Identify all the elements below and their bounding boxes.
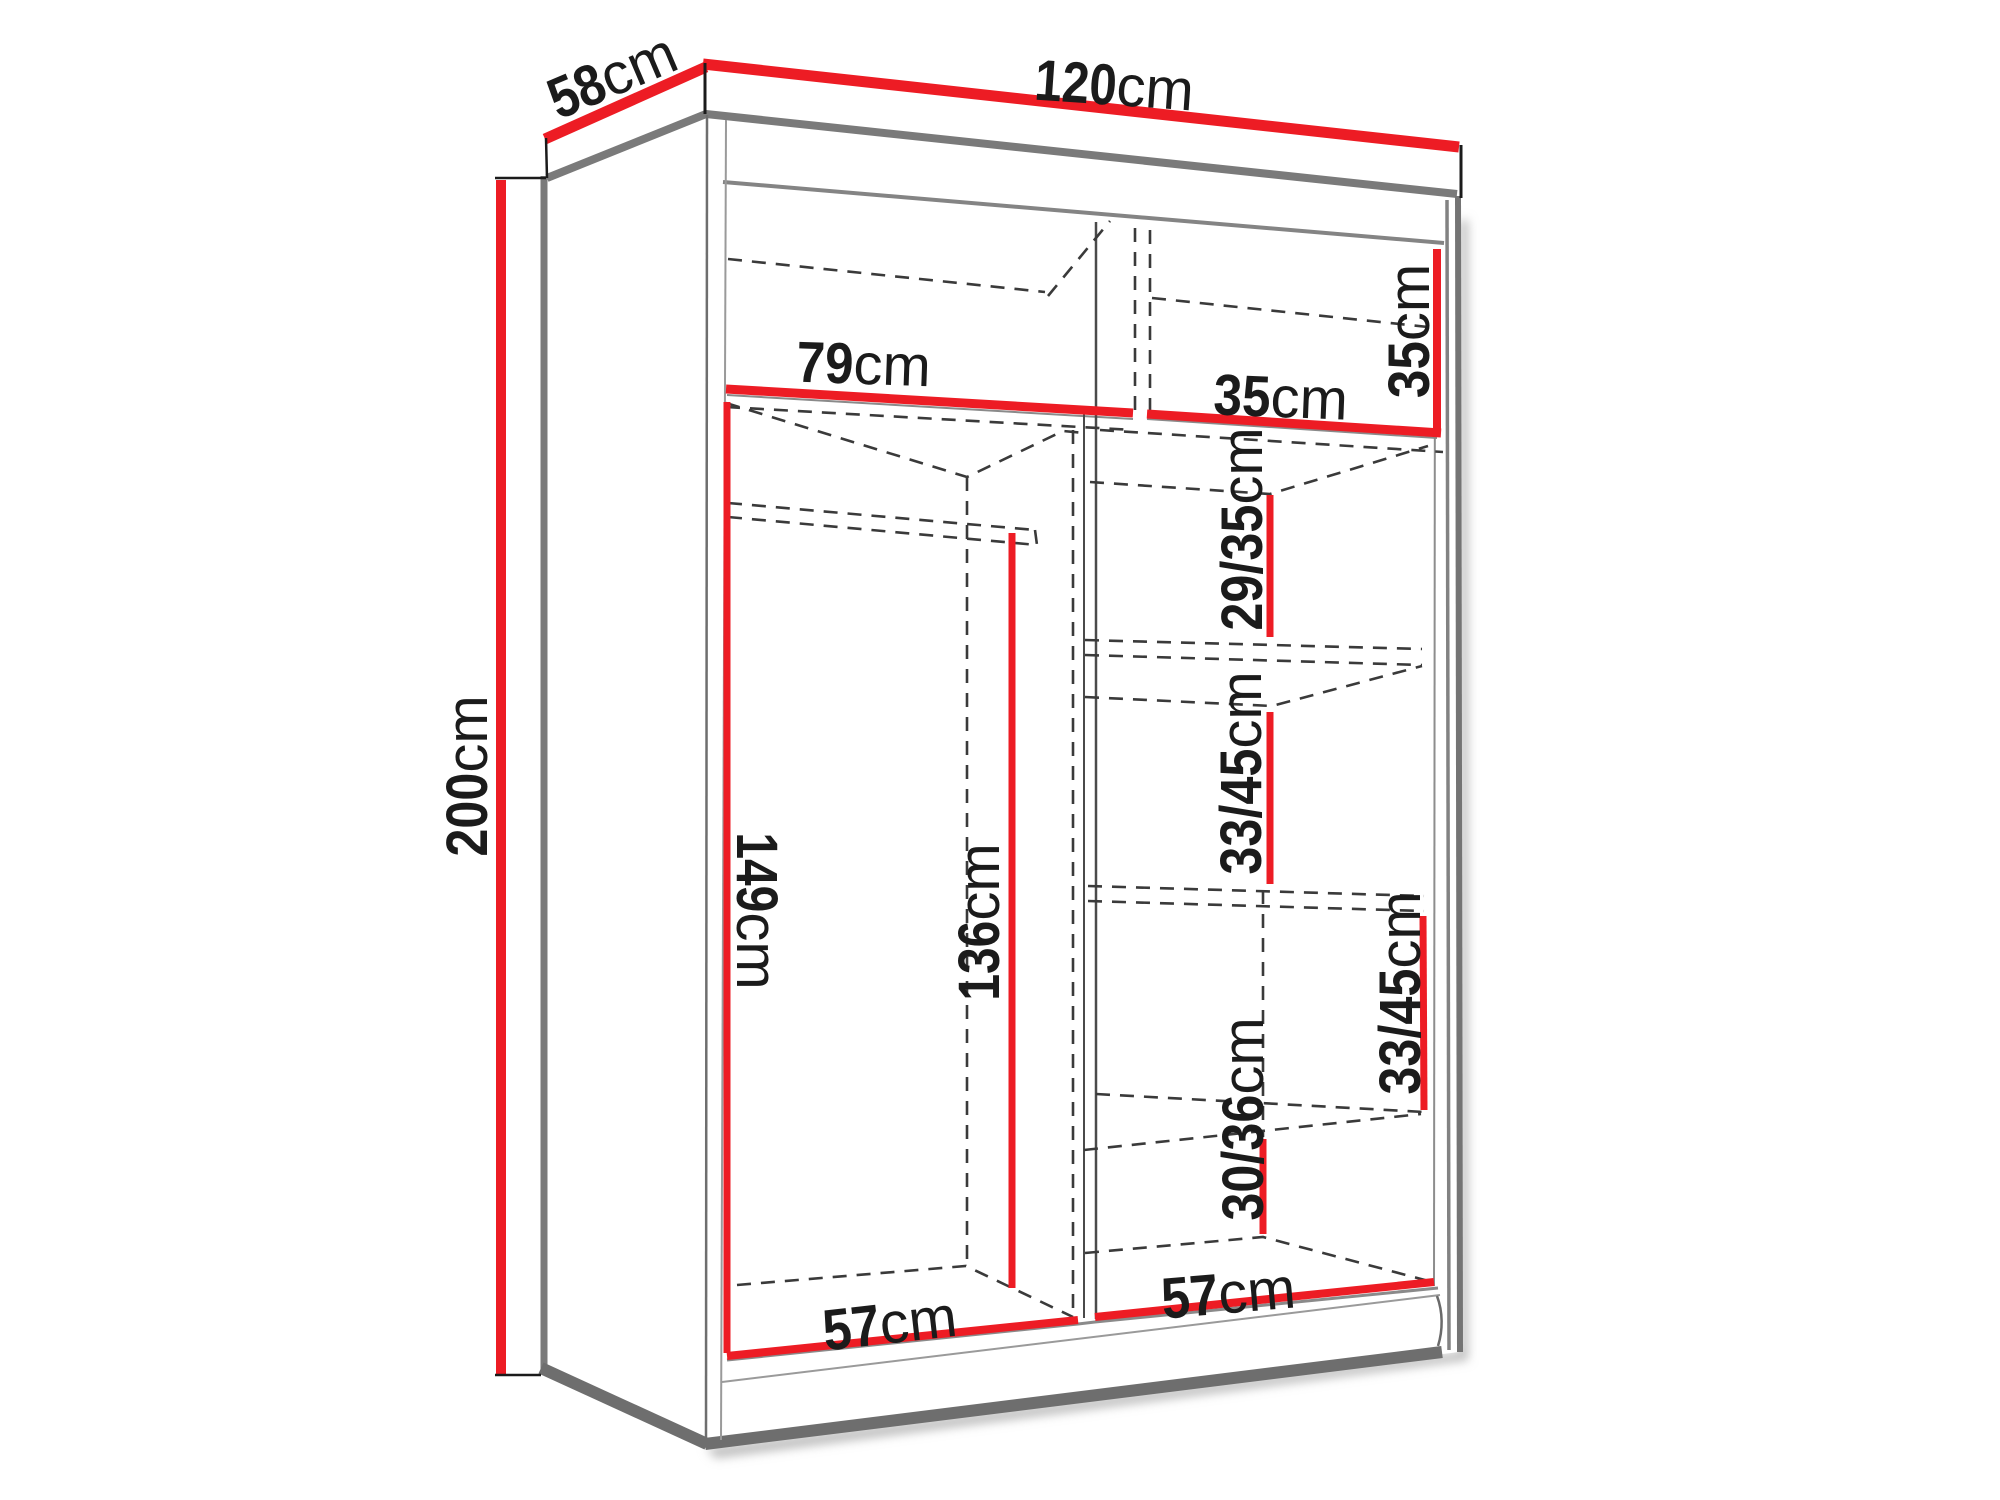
svg-text:200cm: 200cm [435, 695, 500, 856]
svg-text:79cm: 79cm [795, 330, 932, 400]
svg-text:29/35cm: 29/35cm [1210, 427, 1275, 630]
svg-text:120cm: 120cm [1033, 48, 1196, 124]
svg-text:149cm: 149cm [724, 832, 789, 989]
svg-text:35cm: 35cm [1377, 264, 1442, 398]
svg-text:33/45cm: 33/45cm [1368, 891, 1433, 1094]
svg-text:35cm: 35cm [1212, 362, 1349, 432]
svg-text:136cm: 136cm [947, 843, 1012, 1000]
svg-text:33/45cm: 33/45cm [1209, 671, 1274, 874]
svg-text:30/36cm: 30/36cm [1211, 1017, 1276, 1220]
svg-text:57cm: 57cm [1159, 1255, 1298, 1331]
